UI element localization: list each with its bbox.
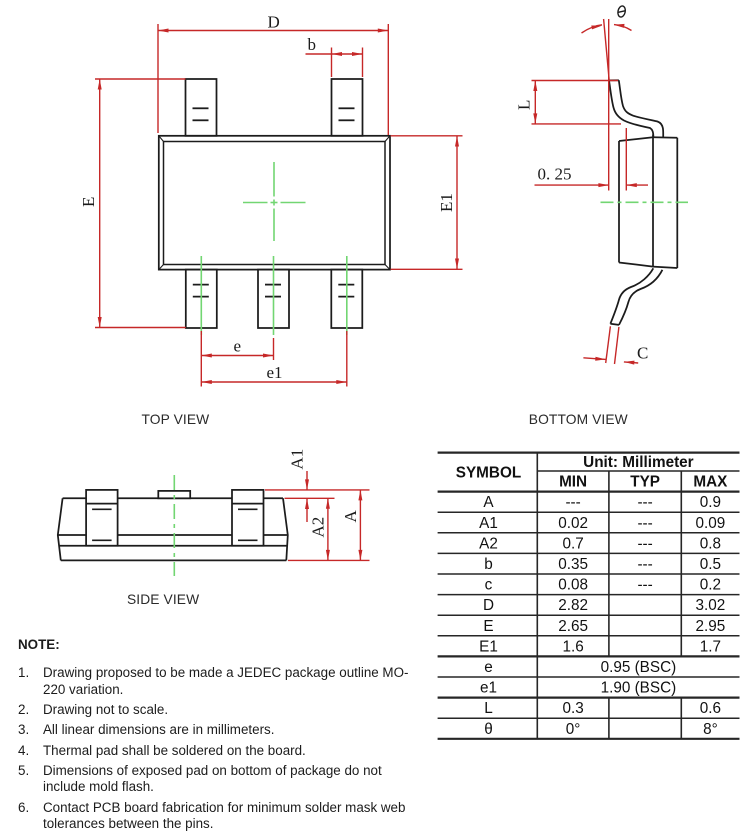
svg-text:0.8: 0.8 [700, 535, 721, 552]
svg-text:e: e [484, 659, 493, 676]
svg-text:A2: A2 [479, 535, 498, 552]
svg-text:MAX: MAX [693, 474, 728, 491]
svg-text:c: c [485, 577, 493, 594]
svg-text:b: b [484, 556, 493, 573]
svg-text:1.90 (BSC): 1.90 (BSC) [601, 680, 677, 697]
svg-text:e1: e1 [267, 363, 283, 382]
svg-text:b: b [308, 35, 317, 54]
svg-text:---: --- [637, 515, 652, 532]
svg-text:---: --- [637, 556, 652, 573]
svg-text:θ: θ [484, 721, 493, 738]
svg-text:0.7: 0.7 [562, 535, 583, 552]
svg-text:---: --- [565, 494, 580, 511]
svg-text:D: D [483, 597, 494, 614]
svg-text:e: e [234, 337, 242, 356]
svg-text:1.7: 1.7 [700, 638, 721, 655]
svg-text:0.02: 0.02 [558, 515, 588, 532]
svg-text:2.82: 2.82 [558, 597, 588, 614]
svg-text:3.02: 3.02 [696, 597, 726, 614]
svg-text:0.2: 0.2 [700, 577, 721, 594]
svg-text:0.6: 0.6 [700, 700, 721, 717]
svg-text:---: --- [637, 535, 652, 552]
svg-text:L: L [515, 100, 534, 110]
svg-text:0°: 0° [566, 721, 581, 738]
svg-text:0.95 (BSC): 0.95 (BSC) [601, 659, 677, 676]
svg-text:A1: A1 [288, 449, 307, 470]
svg-text:8°: 8° [703, 721, 718, 738]
svg-text:2.95: 2.95 [696, 618, 726, 635]
svg-text:e1: e1 [480, 680, 497, 697]
svg-text:0.5: 0.5 [700, 556, 721, 573]
svg-text:0.9: 0.9 [700, 494, 721, 511]
svg-text:SYMBOL: SYMBOL [456, 464, 521, 481]
svg-text:2.65: 2.65 [558, 618, 588, 635]
svg-text:A2: A2 [309, 517, 328, 538]
svg-text:E1: E1 [437, 193, 456, 212]
svg-text:1.6: 1.6 [562, 638, 583, 655]
svg-text:0.3: 0.3 [562, 700, 583, 717]
svg-text:MIN: MIN [559, 474, 587, 491]
svg-text:0.08: 0.08 [558, 577, 588, 594]
svg-text:L: L [484, 700, 493, 717]
svg-text:E: E [79, 197, 98, 207]
svg-text:E1: E1 [479, 638, 498, 655]
svg-text:---: --- [637, 577, 652, 594]
svg-text:---: --- [637, 494, 652, 511]
svg-text:E: E [483, 618, 493, 635]
svg-text:0.09: 0.09 [696, 515, 726, 532]
svg-text:Unit: Millimeter: Unit: Millimeter [583, 454, 694, 471]
svg-text:A: A [483, 494, 494, 511]
svg-text:0.35: 0.35 [558, 556, 588, 573]
svg-text:C: C [637, 344, 648, 363]
svg-text:TYP: TYP [630, 474, 660, 491]
svg-text:0. 25: 0. 25 [538, 165, 572, 184]
svg-text:A1: A1 [479, 515, 498, 532]
svg-text:A: A [341, 510, 360, 523]
svg-text:D: D [268, 13, 280, 32]
